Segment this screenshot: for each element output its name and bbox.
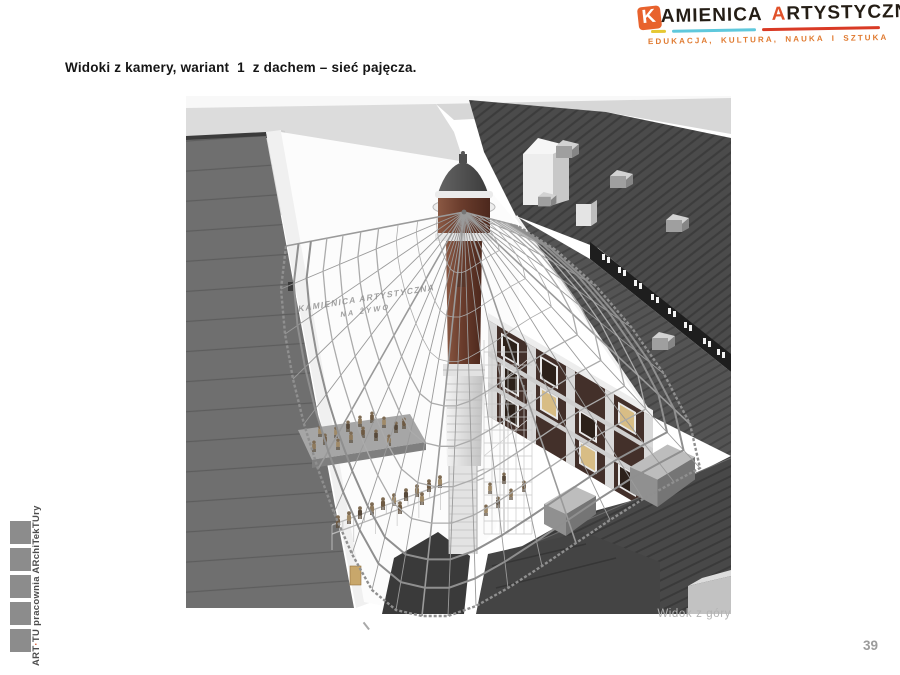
sidebar-square (10, 575, 31, 598)
sidebar-square (10, 548, 31, 571)
stray-tick-mark (363, 622, 370, 630)
logo-word1: AMIENICA (661, 4, 763, 27)
logo-k-badge: K (637, 5, 662, 30)
sidebar-squares (10, 521, 31, 656)
page-number: 39 (863, 638, 878, 653)
studio-label: ART·TU pracownia ARchiTekTUry (31, 514, 42, 666)
sidebar-square (10, 602, 31, 625)
logo-a-accent: A (771, 4, 786, 25)
render-svg (186, 96, 731, 620)
tower-shaft (446, 241, 482, 366)
underline-red (762, 26, 880, 31)
underline-cyan (672, 28, 756, 32)
presentation-slide: KAMIENICAARTYSTYCZNA EDUKACJA, KULTURA, … (0, 0, 900, 675)
sidebar-square (10, 629, 31, 652)
studio-separator-dot: · (31, 642, 42, 645)
brand-logo: KAMIENICAARTYSTYCZNA EDUKACJA, KULTURA, … (638, 4, 890, 44)
logo-word2: RTYSTYCZNA (786, 1, 900, 25)
brand-logo-title: KAMIENICAARTYSTYCZNA (638, 1, 890, 29)
sidebar-square (10, 521, 31, 544)
logo-subtitle: EDUKACJA, KULTURA, NAUKA I SZTUKA (648, 33, 890, 46)
figure-3d-render: KAMIENICA ARTYSTYCZNA NA ŻYWO (186, 96, 731, 620)
tower-ribbed-base (445, 376, 483, 466)
underline-yellow (651, 30, 666, 33)
slide-title: Widoki z kamery, wariant 1 z dachem – si… (65, 60, 417, 75)
figure-caption: Widok z góry (186, 608, 731, 620)
